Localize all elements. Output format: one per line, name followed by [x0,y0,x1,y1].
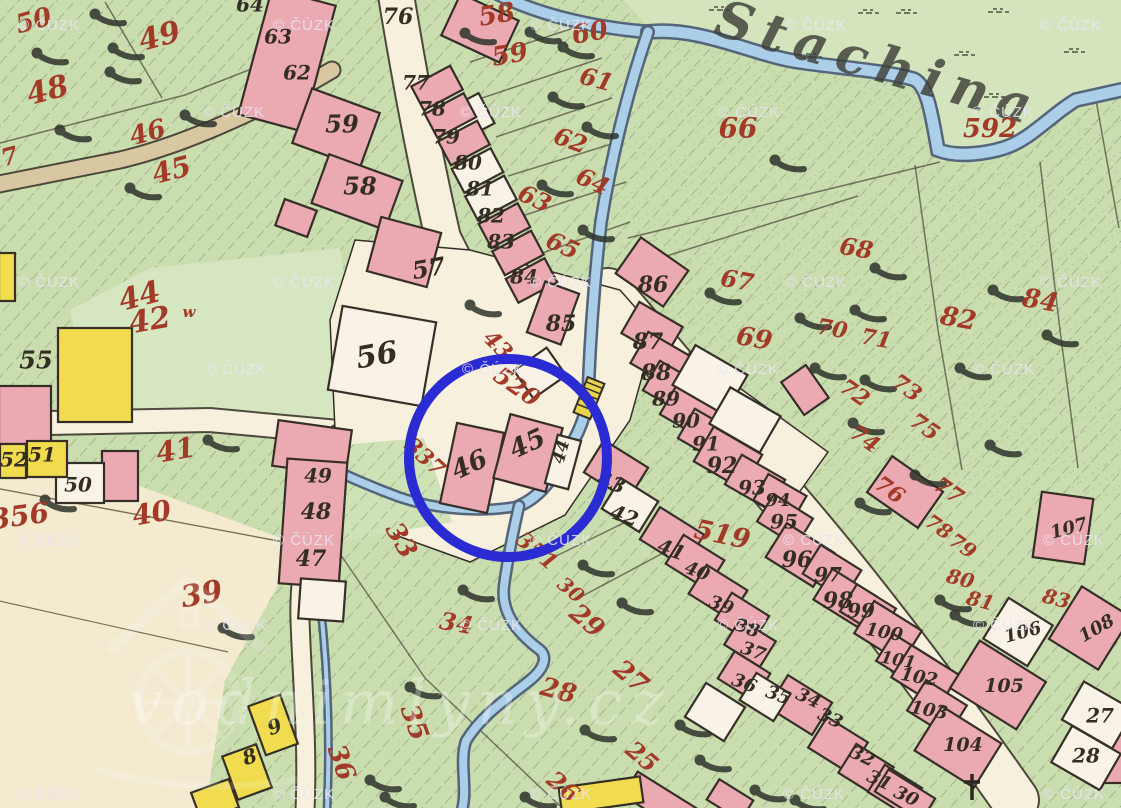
cuzk-copyright-watermark: © ČÚZK [460,104,522,121]
parcel-number-label: 82 [937,301,979,337]
cuzk-copyright-watermark: © ČÚZK [1040,17,1102,34]
cuzk-copyright-watermark: © ČÚZK [530,17,592,34]
parcel-number-label: 71 [859,324,894,355]
cuzk-copyright-watermark: © ČÚZK [973,361,1035,378]
house-number-label: 48 [301,499,332,525]
cuzk-copyright-watermark: © ČÚZK [205,617,267,634]
house-number-label: 85 [545,311,577,337]
cuzk-copyright-watermark: © ČÚZK [460,617,522,634]
house-number-label: 80 [453,151,482,175]
cuzk-copyright-watermark: © ČÚZK [1040,274,1102,291]
house-number-label: 28 [1071,744,1100,768]
house-number-label: 78 [418,97,446,121]
house-number-label: 56 [353,335,400,377]
cuzk-copyright-watermark: © ČÚZK [273,532,335,549]
house-number-label: 92 [707,453,738,479]
house-number-label: 91 [692,432,720,456]
cadastral-map-viewport: Stachina 504948464574442w414035639333536… [0,0,1121,808]
cuzk-copyright-watermark: © ČÚZK [783,532,845,549]
parcel-number-label: 70 [815,314,850,345]
cuzk-copyright-watermark: © ČÚZK [18,786,80,803]
cuzk-copyright-watermark: © ČÚZK [1043,786,1105,803]
house-number-label: 104 [943,734,983,756]
cuzk-copyright-watermark: © ČÚZK [717,617,779,634]
cuzk-copyright-watermark: © ČÚZK [783,786,845,803]
house-number-label: 47 [296,546,327,572]
cuzk-copyright-watermark: © ČÚZK [18,17,80,34]
cuzk-copyright-watermark: © ČÚZK [205,361,267,378]
house-number-label: 88 [640,360,672,386]
house-number-label: 89 [651,387,680,411]
house-number-label: 58 [343,172,377,201]
parcel-number-label: 40 [130,493,175,532]
house-number-label: 59 [325,110,359,139]
house-number-label: 105 [984,675,1024,697]
cuzk-copyright-watermark: © ČÚZK [717,361,779,378]
parcel-number-label: 69 [734,321,775,357]
house-number-label: 55 [19,346,52,375]
house-footprint [0,386,51,444]
cuzk-copyright-watermark: © ČÚZK [973,617,1035,634]
cuzk-copyright-watermark: © ČÚZK [530,274,592,291]
house-footprint [298,578,346,621]
cuzk-copyright-watermark: © ČÚZK [530,532,592,549]
house-number-label: 77 [402,71,430,95]
cuzk-copyright-watermark: © ČÚZK [530,786,592,803]
cuzk-copyright-watermark: © ČÚZK [273,786,335,803]
house-footprint [0,253,15,301]
house-number-label: 86 [637,272,669,298]
house-number-label: 79 [432,125,460,149]
house-number-label: 83 [486,230,515,254]
house-number-label: 90 [672,409,700,433]
cuzk-copyright-watermark: © ČÚZK [18,532,80,549]
house-number-label: 95 [770,510,798,534]
house-number-label: 94 [765,490,790,511]
house-number-label: 57 [410,251,448,285]
cuzk-copyright-watermark: © ČÚZK [203,104,265,121]
house-number-label: 96 [782,547,813,573]
cadastral-map: Stachina 504948464574442w414035639333536… [0,0,1121,808]
parcel-number-label: 41 [154,430,198,469]
house-number-label: 52 [0,448,28,472]
house-number-label: 82 [476,204,505,228]
house-number-label: 87 [632,329,664,355]
cuzk-copyright-watermark: © ČÚZK [273,274,335,291]
house-footprint [58,328,132,422]
parcel-number-label: 68 [837,231,875,265]
house-number-label: 50 [64,473,92,497]
cuzk-copyright-watermark: © ČÚZK [273,17,335,34]
parcel-number-label: 42 [126,300,173,342]
parcel-number-label: 59 [489,37,530,73]
cuzk-copyright-watermark: © ČÚZK [18,274,80,291]
house-number-label: 64 [236,0,264,17]
cuzk-copyright-watermark: © ČÚZK [972,104,1034,121]
parcel-number-label: 67 [718,263,756,297]
site-watermark-text: vodnimlyny.cz [128,666,671,739]
house-number-label: 97 [814,563,842,587]
cuzk-copyright-watermark: © ČÚZK [462,361,524,378]
cuzk-copyright-watermark: © ČÚZK [785,274,847,291]
cuzk-copyright-watermark: © ČÚZK [785,17,847,34]
house-number-label: 81 [465,177,494,201]
house-number-label: 49 [304,464,332,488]
cuzk-copyright-watermark: © ČÚZK [1043,532,1105,549]
cuzk-copyright-watermark: © ČÚZK [718,104,780,121]
house-number-label: 76 [383,4,414,30]
house-number-label: 51 [28,443,56,467]
house-number-label: 93 [738,476,766,500]
parcel-number-label: w [183,303,197,321]
house-number-label: 27 [1085,704,1114,728]
house-number-label: 62 [283,61,311,85]
house-footprint [102,451,138,501]
